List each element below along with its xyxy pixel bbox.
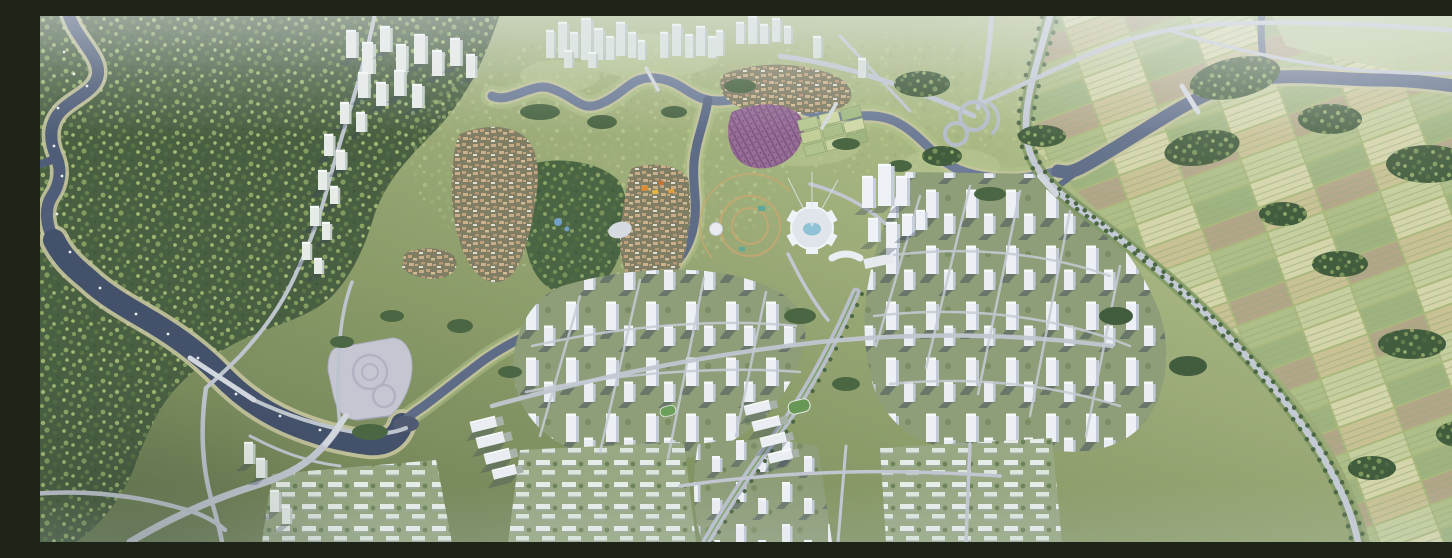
aerial-render-canvas: Eastern striped farmland plots Western f…	[40, 16, 1452, 542]
aerial-render: Eastern striped farmland plots Western f…	[40, 16, 1452, 542]
atmosphere-haze: Atmospheric haze	[40, 16, 1452, 542]
